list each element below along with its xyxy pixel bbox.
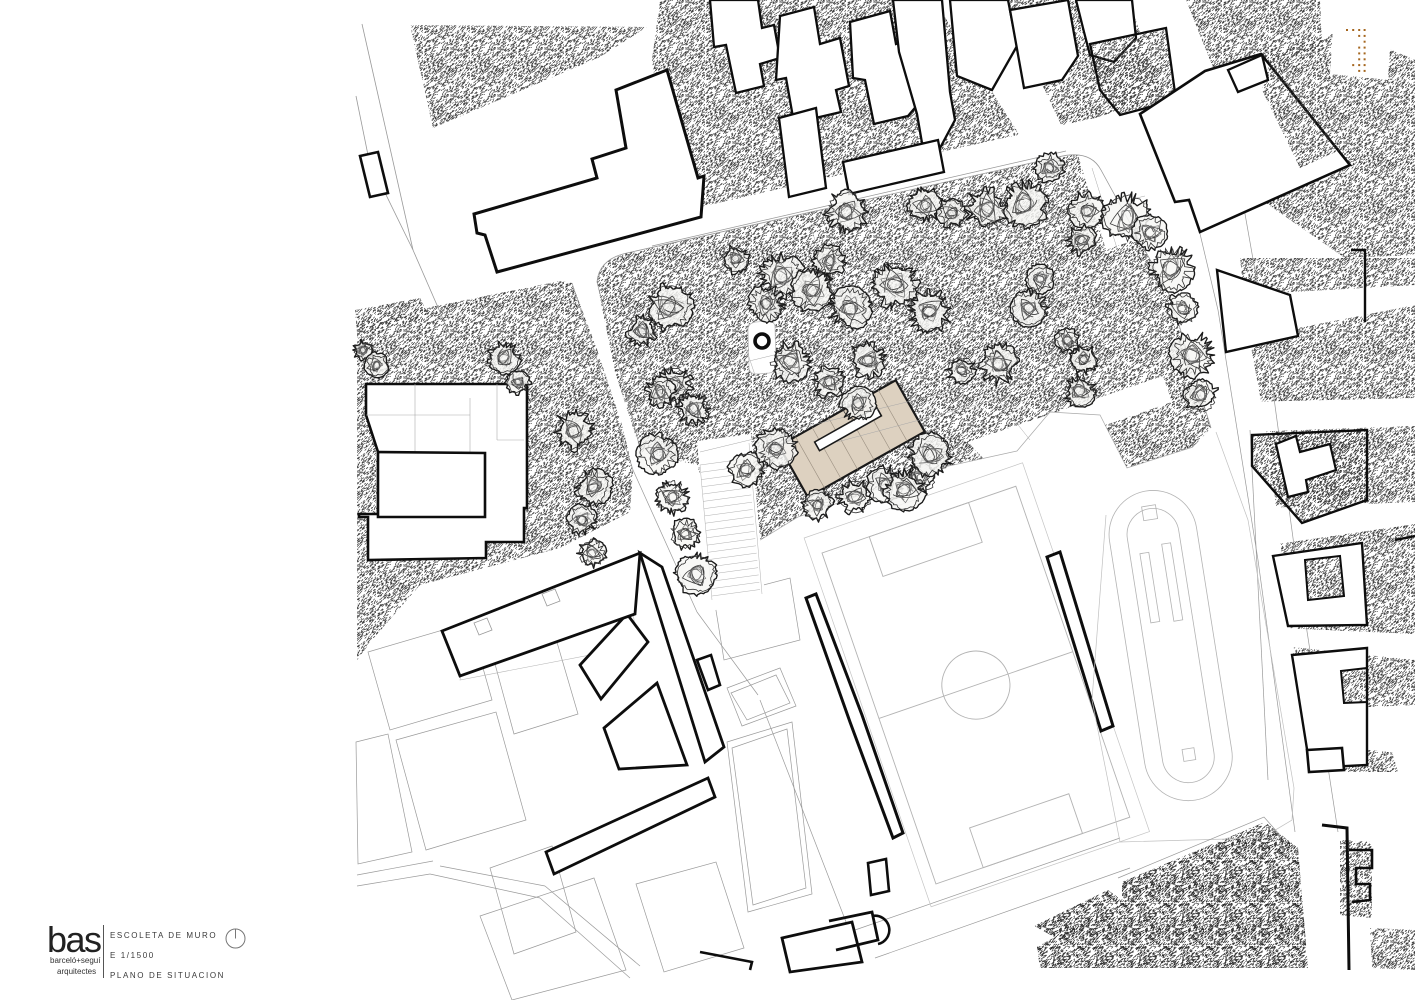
svg-text:E 1/1500: E 1/1500 [110, 951, 155, 960]
svg-text:barceló+seguí: barceló+seguí [50, 956, 101, 965]
svg-text:PLANO DE SITUACION: PLANO DE SITUACION [110, 971, 225, 980]
svg-text:bas: bas [47, 919, 101, 960]
svg-text:ESCOLETA DE MURO: ESCOLETA DE MURO [110, 931, 217, 940]
svg-text:arquitectes: arquitectes [57, 967, 96, 976]
